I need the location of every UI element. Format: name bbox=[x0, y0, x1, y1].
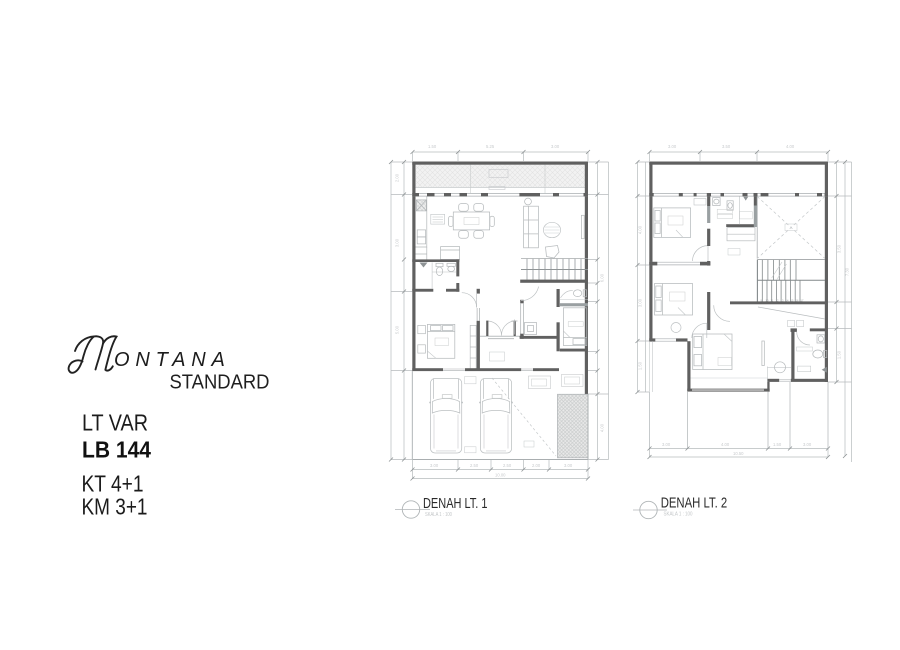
svg-text:1.50: 1.50 bbox=[837, 350, 842, 359]
svg-text:3.00: 3.00 bbox=[564, 463, 573, 468]
svg-text:ONTANA: ONTANA bbox=[114, 349, 231, 371]
svg-text:4.00: 4.00 bbox=[721, 442, 730, 447]
svg-text:STANDARD: STANDARD bbox=[170, 371, 270, 394]
svg-text:DENAH LT. 2: DENAH LT. 2 bbox=[661, 495, 728, 511]
svg-text:4.00: 4.00 bbox=[600, 423, 605, 432]
svg-text:SKALA 1 : 100: SKALA 1 : 100 bbox=[425, 512, 452, 518]
svg-text:1.50: 1.50 bbox=[428, 144, 437, 149]
svg-text:2.00: 2.00 bbox=[532, 463, 541, 468]
svg-text:5.25: 5.25 bbox=[486, 144, 495, 149]
svg-text:2.50: 2.50 bbox=[503, 463, 512, 468]
svg-text:3.00: 3.00 bbox=[551, 144, 560, 149]
svg-text:1.50: 1.50 bbox=[638, 361, 643, 370]
svg-text:1.50: 1.50 bbox=[773, 442, 782, 447]
svg-text:3.00: 3.00 bbox=[803, 442, 812, 447]
svg-text:LB 144: LB 144 bbox=[82, 437, 151, 463]
svg-text:LT VAR: LT VAR bbox=[82, 410, 148, 436]
svg-text:SKALA 1 : 100: SKALA 1 : 100 bbox=[664, 512, 693, 518]
svg-text:3.00: 3.00 bbox=[668, 144, 677, 149]
svg-text:3.00: 3.00 bbox=[430, 463, 439, 468]
svg-text:4.00: 4.00 bbox=[786, 144, 795, 149]
svg-text:3.00: 3.00 bbox=[395, 238, 400, 247]
svg-text:2.50: 2.50 bbox=[470, 463, 479, 468]
svg-text:KM 3+1: KM 3+1 bbox=[82, 494, 148, 520]
svg-text:2.00: 2.00 bbox=[395, 173, 400, 182]
svg-text:6.00: 6.00 bbox=[600, 273, 605, 282]
svg-text:10.50: 10.50 bbox=[733, 451, 744, 456]
svg-text:3.50: 3.50 bbox=[722, 144, 731, 149]
svg-text:3.00: 3.00 bbox=[662, 442, 671, 447]
svg-text:5.00: 5.00 bbox=[395, 325, 400, 334]
svg-text:4.00: 4.00 bbox=[638, 225, 643, 234]
svg-text:DENAH LT. 1: DENAH LT. 1 bbox=[423, 496, 488, 512]
svg-text:7.30: 7.30 bbox=[845, 267, 850, 276]
svg-text:3.00: 3.00 bbox=[638, 298, 643, 307]
svg-text:3.50: 3.50 bbox=[837, 244, 842, 253]
svg-text:10.00: 10.00 bbox=[495, 473, 506, 478]
